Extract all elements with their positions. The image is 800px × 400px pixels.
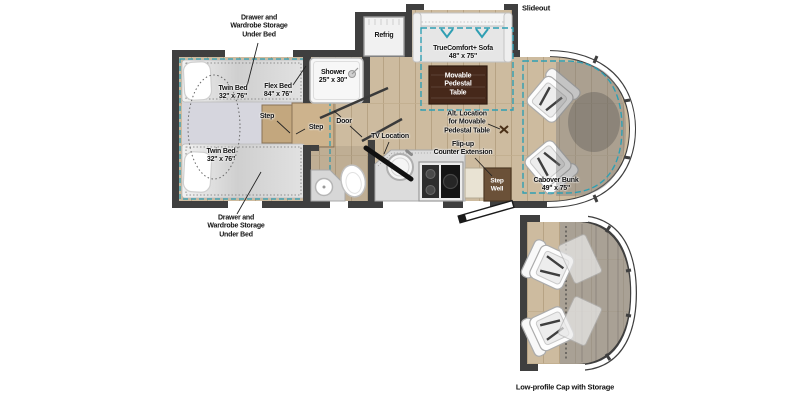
label-step-2: Step	[309, 124, 323, 132]
label-slideout: Slideout	[522, 5, 550, 14]
label-flex-bed: Flex Bed 84" x 76"	[264, 83, 292, 100]
bath-sink-drain	[323, 186, 326, 189]
label-step-well: Step Well	[490, 177, 503, 192]
label-door: Door	[336, 118, 352, 126]
sofa-armrest-left	[413, 13, 421, 62]
label-drawer-storage-top: Drawer and Wardrobe Storage Under Bed	[230, 15, 287, 40]
label-sofa: TrueComfort+ Sofa 48" x 75"	[433, 45, 493, 62]
label-tv-location: TV Location	[371, 133, 409, 141]
rv-floorplan-stage: Drawer and Wardrobe Storage Under Bed Tw…	[0, 0, 800, 400]
label-twin-bed-top: Twin Bed 32" x 76"	[219, 85, 248, 102]
step-platform-bedroom	[262, 105, 292, 143]
label-pedestal-table: Movable Pedestal Table	[444, 73, 471, 98]
label-low-profile-cap: Low-profile Cap with Storage	[516, 384, 614, 393]
cab-shadow	[568, 92, 620, 152]
sofa-armrest-right	[504, 13, 512, 62]
label-step-1: Step	[260, 113, 274, 121]
label-alt-table-location: Alt. Location for Movable Pedestal Table	[444, 111, 490, 136]
stove-glass-burner	[444, 175, 458, 189]
stove-burner-2	[426, 186, 435, 195]
label-refrig: Refrig	[374, 32, 393, 40]
label-flip-up-counter: Flip-up Counter Extension	[434, 141, 493, 158]
label-cabover-bunk: Cabover Bunk 49" x 75"	[533, 177, 578, 194]
floorplan-drawing	[0, 0, 800, 400]
label-twin-bed-bottom: Twin Bed 32" x 76"	[207, 148, 236, 165]
label-drawer-storage-bottom: Drawer and Wardrobe Storage Under Bed	[207, 215, 264, 240]
stove-burner-1	[426, 170, 435, 179]
pillow-top	[183, 61, 212, 100]
label-shower: Shower 25" x 30"	[319, 69, 347, 86]
